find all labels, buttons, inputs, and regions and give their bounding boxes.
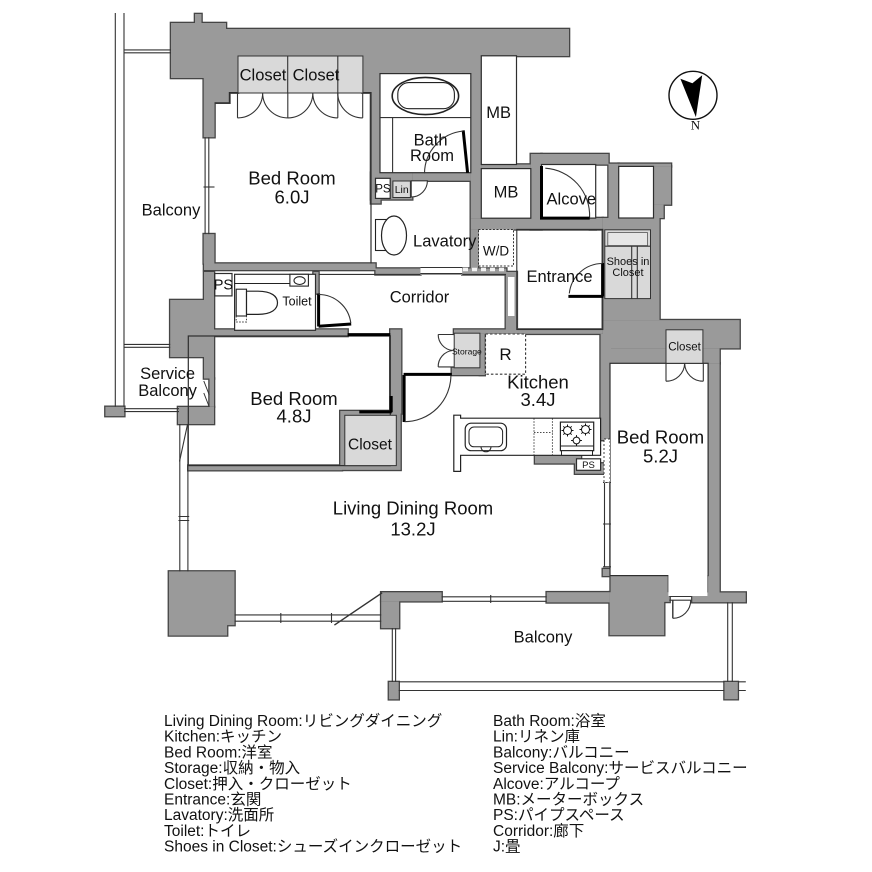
svg-text:Service Balcony:サービスバルコニー: Service Balcony:サービスバルコニー xyxy=(493,759,748,777)
svg-text:Alcove: Alcove xyxy=(547,191,597,209)
svg-text:4.8J: 4.8J xyxy=(277,406,312,427)
svg-text:Bed Room:洋室: Bed Room:洋室 xyxy=(164,743,273,761)
svg-text:J:畳: J:畳 xyxy=(493,839,521,856)
svg-text:PS: PS xyxy=(582,460,595,471)
svg-text:6.0J: 6.0J xyxy=(275,187,310,208)
svg-text:Balcony: Balcony xyxy=(138,382,197,400)
svg-text:PS: PS xyxy=(214,278,233,294)
svg-text:W/D: W/D xyxy=(483,244,509,259)
svg-text:Storage: Storage xyxy=(452,347,482,357)
svg-text:MB: MB xyxy=(486,104,511,122)
svg-text:Closet: Closet xyxy=(293,67,340,85)
svg-text:Kitchen:キッチン: Kitchen:キッチン xyxy=(164,729,282,746)
svg-text:5.2J: 5.2J xyxy=(643,446,678,467)
svg-text:Shoes in: Shoes in xyxy=(607,256,650,268)
svg-text:Entrance: Entrance xyxy=(526,268,592,286)
svg-text:Storage:収納・物入: Storage:収納・物入 xyxy=(164,759,300,777)
svg-text:Room: Room xyxy=(410,147,454,165)
svg-text:N: N xyxy=(691,118,701,133)
svg-text:Service: Service xyxy=(140,365,195,383)
svg-text:Lavatory:洗面所: Lavatory:洗面所 xyxy=(164,806,274,824)
svg-text:Closet: Closet xyxy=(348,437,393,454)
svg-text:Bath Room:浴室: Bath Room:浴室 xyxy=(493,712,606,730)
svg-text:Balcony: Balcony xyxy=(142,202,201,220)
svg-text:Toilet: Toilet xyxy=(282,295,312,309)
svg-text:Toilet:トイレ: Toilet:トイレ xyxy=(164,823,251,840)
svg-text:Corridor: Corridor xyxy=(390,289,450,307)
svg-text:Lin:リネン庫: Lin:リネン庫 xyxy=(493,728,580,746)
svg-text:Closet: Closet xyxy=(668,342,701,354)
svg-text:Alcove:アルコープ: Alcove:アルコープ xyxy=(493,775,620,793)
svg-text:Closet: Closet xyxy=(612,267,643,279)
svg-text:R: R xyxy=(499,345,511,364)
svg-text:Bed Room: Bed Room xyxy=(248,168,335,189)
svg-text:Shoes in Closet:シューズインクローゼット: Shoes in Closet:シューズインクローゼット xyxy=(164,838,462,856)
svg-text:Living Dining Room: Living Dining Room xyxy=(333,498,493,519)
svg-text:13.2J: 13.2J xyxy=(390,519,435,540)
svg-text:MB: MB xyxy=(494,184,519,202)
svg-text:Bed Room: Bed Room xyxy=(617,427,704,448)
svg-text:Living Dining Room:リビングダイニング: Living Dining Room:リビングダイニング xyxy=(164,712,442,730)
svg-text:Lin: Lin xyxy=(395,184,409,196)
svg-text:Closet: Closet xyxy=(240,67,287,85)
svg-text:Balcony:バルコニー: Balcony:バルコニー xyxy=(493,744,630,761)
svg-text:PS:パイプスペース: PS:パイプスペース xyxy=(493,806,625,824)
svg-text:Corridor:廊下: Corridor:廊下 xyxy=(493,822,584,840)
svg-text:3.4J: 3.4J xyxy=(521,389,556,410)
svg-text:Lavatory: Lavatory xyxy=(413,233,477,251)
svg-text:MB:メーターボックス: MB:メーターボックス xyxy=(493,791,644,809)
svg-text:Balcony: Balcony xyxy=(514,629,573,647)
svg-text:PS: PS xyxy=(375,184,391,196)
svg-text:Entrance:玄関: Entrance:玄関 xyxy=(164,791,261,809)
svg-text:Closet:押入・クローゼット: Closet:押入・クローゼット xyxy=(164,775,352,793)
